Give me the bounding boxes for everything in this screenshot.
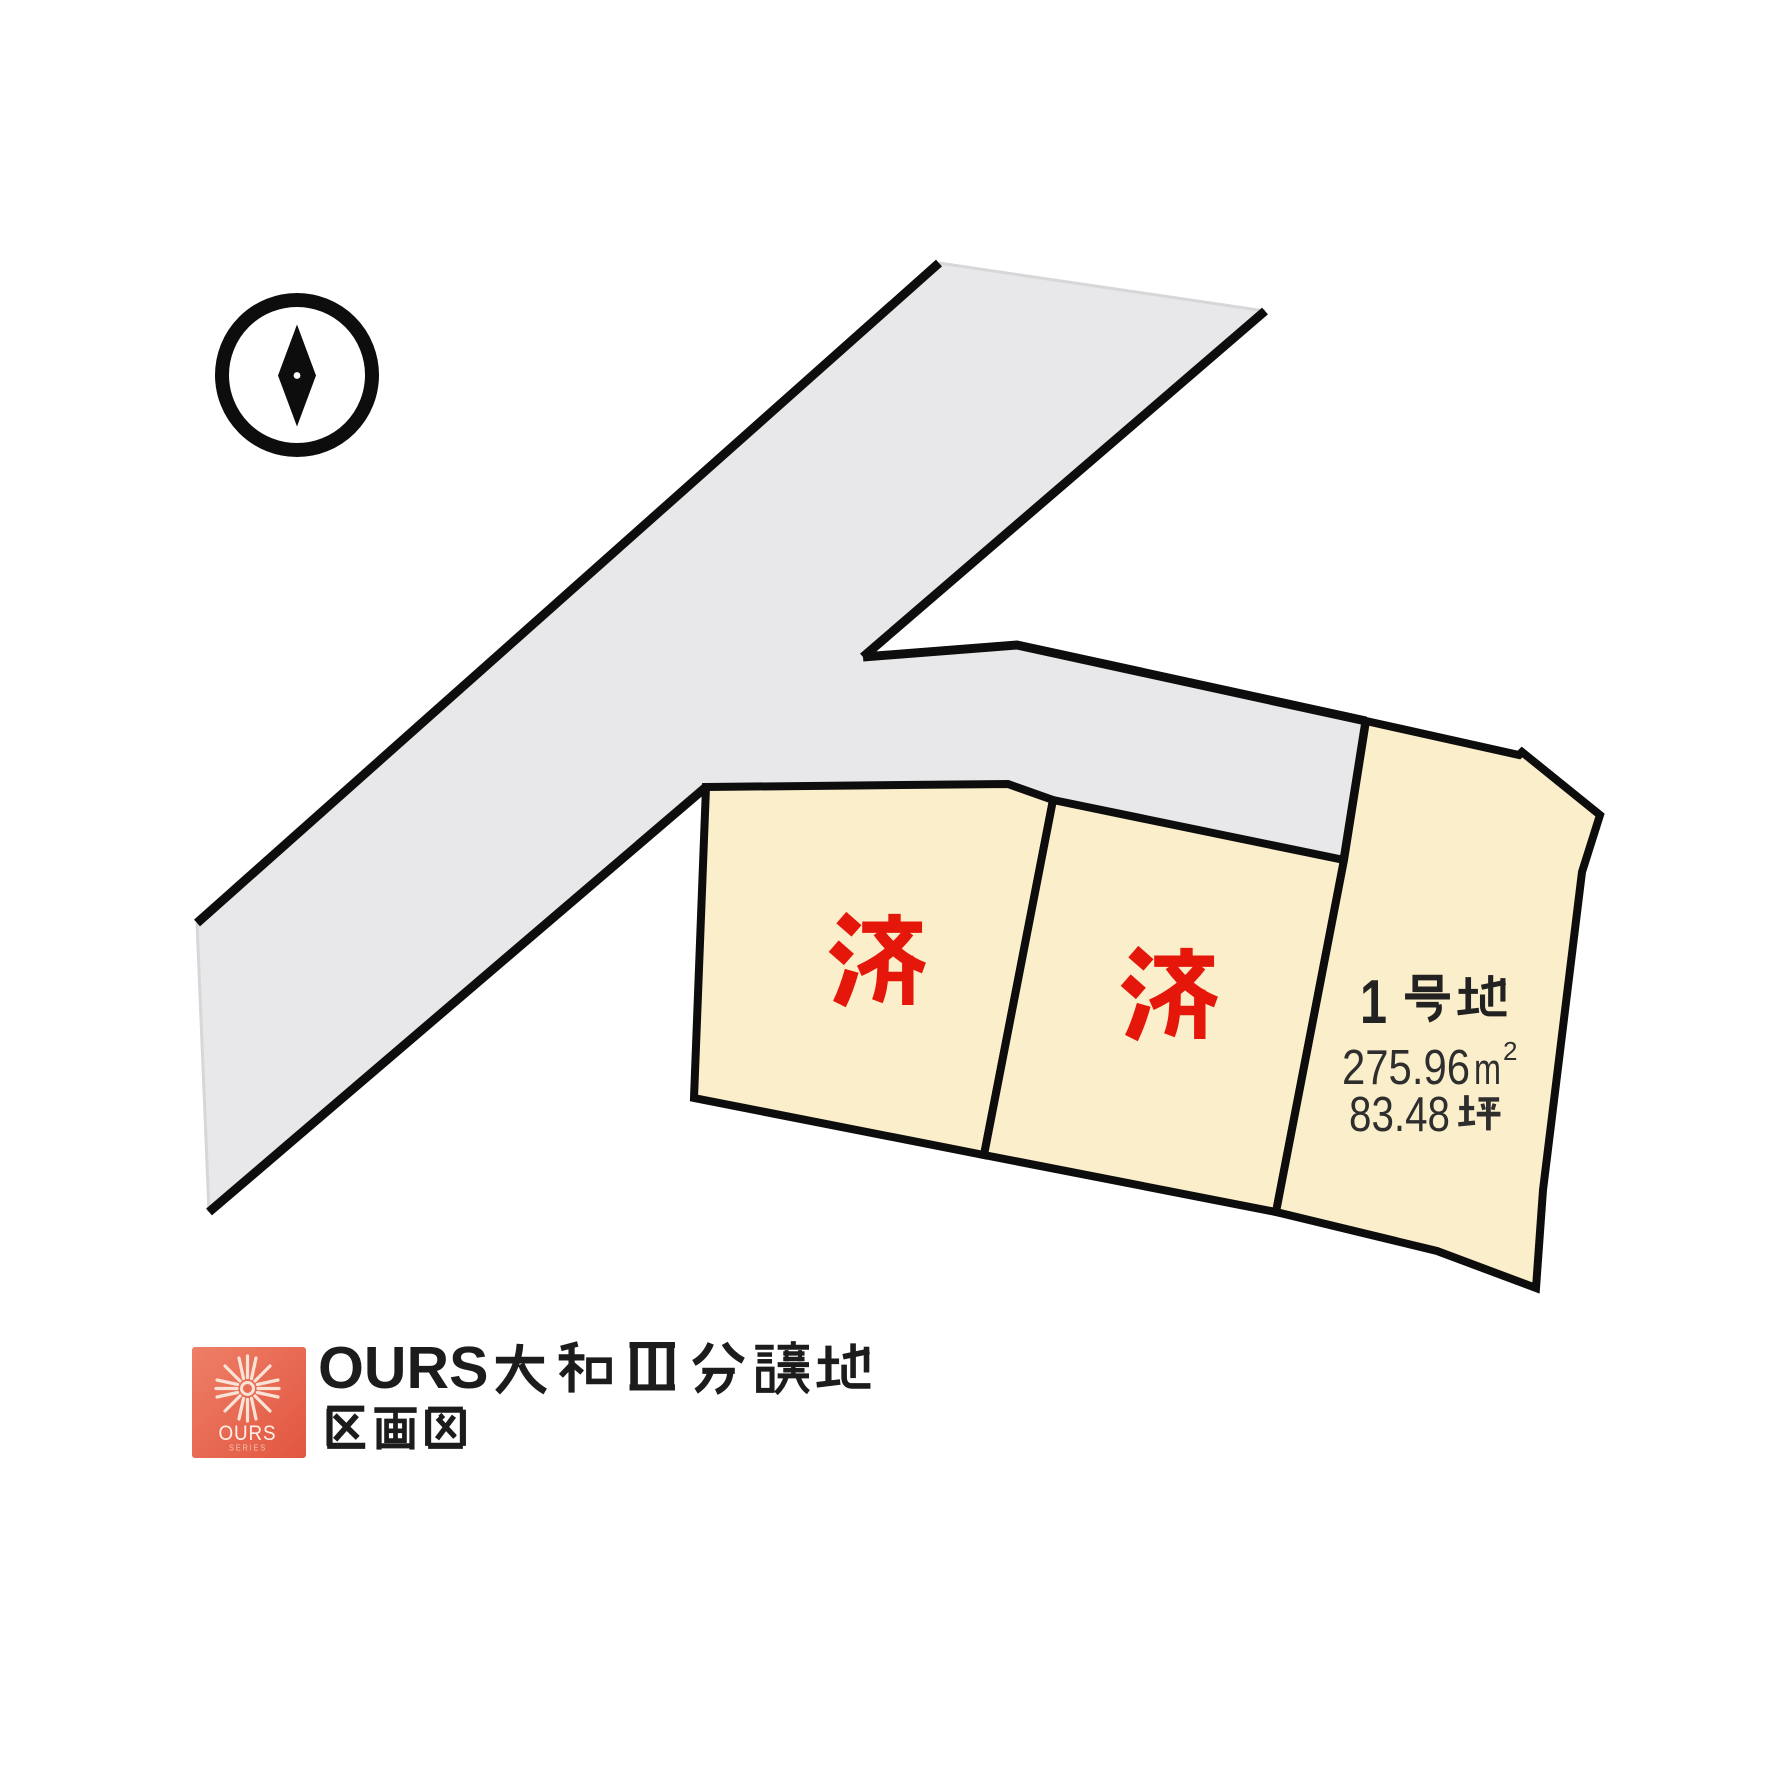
svg-text:m: m xyxy=(1474,1045,1501,1094)
svg-text:1: 1 xyxy=(1360,968,1387,1037)
svg-text:275.96: 275.96 xyxy=(1342,1041,1470,1095)
svg-text:2: 2 xyxy=(1503,1036,1517,1066)
svg-text:OURS: OURS xyxy=(219,1422,277,1445)
svg-text:SERIES: SERIES xyxy=(229,1444,267,1453)
svg-text:OURS: OURS xyxy=(318,1335,488,1401)
svg-text:83.48: 83.48 xyxy=(1349,1088,1450,1142)
